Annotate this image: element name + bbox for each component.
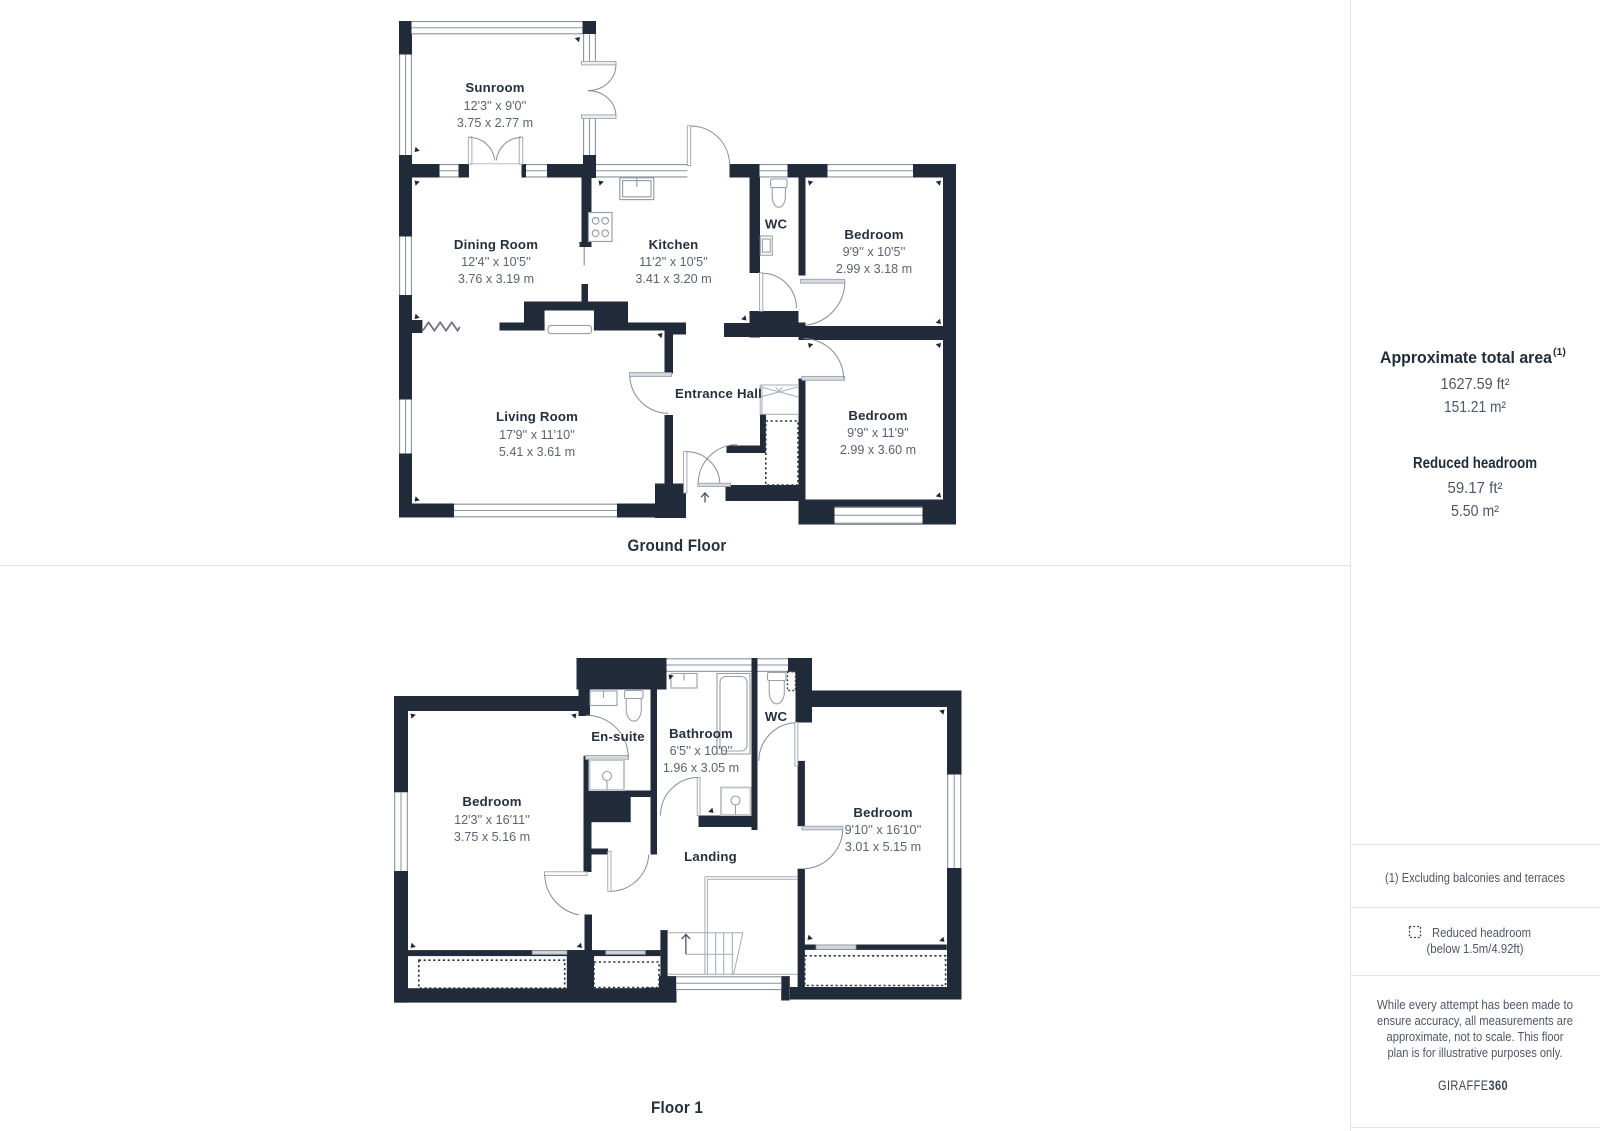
svg-text:Reduced headroom: Reduced headroom [1413, 455, 1537, 472]
svg-text:ensure accuracy, all measureme: ensure accuracy, all measurements are [1377, 1013, 1573, 1028]
svg-text:151.21 m²: 151.21 m² [1444, 399, 1506, 416]
svg-text:3.76 x 3.19 m: 3.76 x 3.19 m [458, 272, 534, 286]
svg-text:11'2'' x 10'5'': 11'2'' x 10'5'' [639, 255, 708, 269]
svg-text:Bedroom: Bedroom [462, 794, 521, 809]
svg-text:(1): (1) [1553, 346, 1566, 358]
svg-text:Bedroom: Bedroom [844, 227, 903, 242]
svg-text:3.01 x 5.15 m: 3.01 x 5.15 m [845, 840, 921, 854]
svg-text:12'3'' x 16'11'': 12'3'' x 16'11'' [454, 813, 530, 827]
svg-text:Living Room: Living Room [496, 409, 578, 424]
svg-text:12'4'' x 10'5'': 12'4'' x 10'5'' [461, 255, 531, 269]
svg-text:1.96 x 3.05 m: 1.96 x 3.05 m [663, 761, 739, 775]
svg-text:6'5'' x 10'0'': 6'5'' x 10'0'' [670, 744, 733, 758]
svg-text:Sunroom: Sunroom [465, 80, 524, 95]
svg-text:Bedroom: Bedroom [848, 408, 907, 423]
svg-text:(1) Excluding balconies and te: (1) Excluding balconies and terraces [1385, 870, 1565, 885]
svg-text:12'3'' x 9'0'': 12'3'' x 9'0'' [464, 99, 527, 113]
svg-text:(below 1.5m/4.92ft): (below 1.5m/4.92ft) [1427, 941, 1524, 956]
svg-text:5.50 m²: 5.50 m² [1451, 503, 1499, 520]
svg-text:Entrance Hall: Entrance Hall [675, 386, 762, 401]
svg-text:9'9'' x 11'9'': 9'9'' x 11'9'' [847, 426, 909, 440]
svg-text:approximate, not to scale. Thi: approximate, not to scale. This floor [1387, 1029, 1565, 1044]
svg-text:Landing: Landing [684, 849, 737, 864]
svg-text:WC: WC [765, 709, 788, 724]
svg-text:Kitchen: Kitchen [649, 237, 699, 252]
svg-text:9'10'' x 16'10'': 9'10'' x 16'10'' [845, 823, 922, 837]
svg-text:Ground Floor: Ground Floor [628, 536, 727, 555]
svg-text:Approximate total area: Approximate total area [1380, 348, 1552, 367]
svg-text:3.75 x 2.77 m: 3.75 x 2.77 m [457, 116, 533, 130]
svg-text:17'9'' x 11'10'': 17'9'' x 11'10'' [499, 428, 575, 442]
svg-text:En-suite: En-suite [591, 729, 645, 744]
svg-text:5.41 x 3.61 m: 5.41 x 3.61 m [499, 445, 575, 459]
svg-text:Floor 1: Floor 1 [651, 1098, 703, 1117]
svg-text:Bedroom: Bedroom [853, 805, 912, 820]
svg-text:2.99 x 3.60 m: 2.99 x 3.60 m [840, 443, 916, 457]
svg-text:1627.59 ft²: 1627.59 ft² [1441, 376, 1510, 393]
svg-text:GIRAFFE360: GIRAFFE360 [1438, 1078, 1508, 1093]
svg-text:Bathroom: Bathroom [669, 726, 733, 741]
svg-text:Reduced headroom: Reduced headroom [1432, 925, 1531, 940]
svg-text:59.17 ft²: 59.17 ft² [1448, 480, 1503, 497]
svg-text:2.99 x 3.18 m: 2.99 x 3.18 m [836, 262, 912, 276]
svg-text:Dining Room: Dining Room [454, 237, 538, 252]
svg-text:WC: WC [765, 217, 788, 232]
svg-text:plan is for illustrative purpo: plan is for illustrative purposes only. [1388, 1045, 1563, 1060]
svg-text:3.75 x 5.16 m: 3.75 x 5.16 m [454, 830, 530, 844]
svg-text:3.41 x 3.20 m: 3.41 x 3.20 m [635, 272, 711, 286]
svg-text:While every attempt has been m: While every attempt has been made to [1377, 997, 1573, 1012]
svg-text:9'9'' x 10'5'': 9'9'' x 10'5'' [843, 245, 906, 259]
